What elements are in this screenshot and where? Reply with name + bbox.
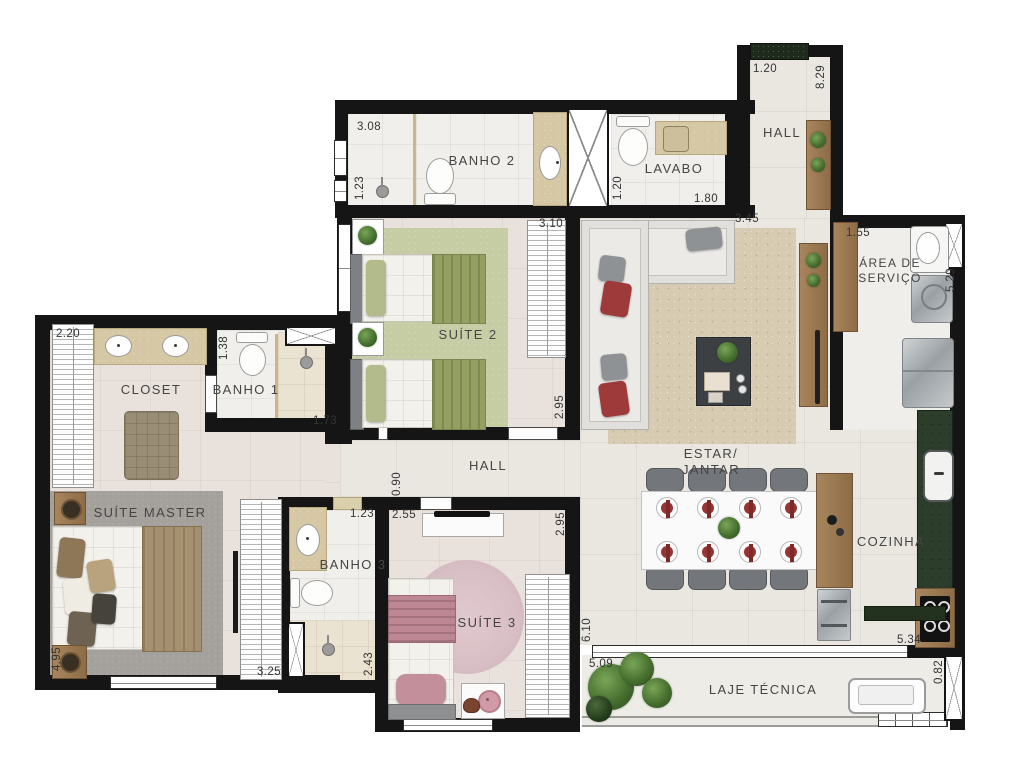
dimension-label: 2.20 [56,328,80,340]
dimension-label: 8.29 [815,65,827,89]
dimension-label: 4.95 [51,647,63,671]
room-label-banho-1: BANHO 1 [213,382,280,398]
dimension-label: 3.08 [357,121,381,133]
room-label-suite-3: SUÍTE 3 [458,615,517,631]
room-label-closet: CLOSET [121,382,181,398]
room-label-lavabo: LAVABO [645,161,704,177]
dimension-label: 5.29 [945,268,957,292]
dimension-label: 2.95 [554,395,566,419]
room-label-banho-3: BANHO 3 [320,557,387,573]
room-label-area-servico: ÁREA DE SERVIÇO [858,256,922,286]
room-label-suite-master: SUÍTE MASTER [94,505,207,521]
room-label-hall-entry: HALL [763,125,801,141]
room-label-suite-2: SUÍTE 2 [439,327,498,343]
dimension-label: 1.23 [350,508,374,520]
labels-layer: BANHO 2LAVABOHALLÁREA DE SERVIÇOSUÍTE 2C… [0,0,1024,769]
dimension-label: 1.20 [753,63,777,75]
room-label-banho-2: BANHO 2 [449,153,516,169]
room-label-hall: HALL [469,458,507,474]
dimension-label: 0.90 [391,472,403,496]
dimension-label: 3.25 [257,666,281,678]
dimension-label: 5.09 [589,658,613,670]
dimension-label: 3.45 [735,213,759,225]
dimension-label: 3.10 [539,218,563,230]
room-label-estar-jantar: ESTAR/ JANTAR [682,446,740,479]
dimension-label: 1.23 [354,176,366,200]
dimension-label: 1.20 [612,176,624,200]
dimension-label: 1.73 [313,415,337,427]
dimension-label: 2.43 [363,652,375,676]
dimension-label: 1.38 [218,336,230,360]
dimension-label: 1.55 [846,227,870,239]
dimension-label: 2.95 [555,512,567,536]
room-label-cozinha: COZINHA [857,534,925,550]
dimension-label: 6.10 [581,618,593,642]
floor-plan: BANHO 2LAVABOHALLÁREA DE SERVIÇOSUÍTE 2C… [0,0,1024,769]
dimension-label: 5.34 [897,634,921,646]
dimension-label: 2.55 [392,509,416,521]
dimension-label: 0.82 [933,660,945,684]
room-label-laje-tecnica: LAJE TÉCNICA [709,682,817,698]
dimension-label: 1.80 [694,193,718,205]
